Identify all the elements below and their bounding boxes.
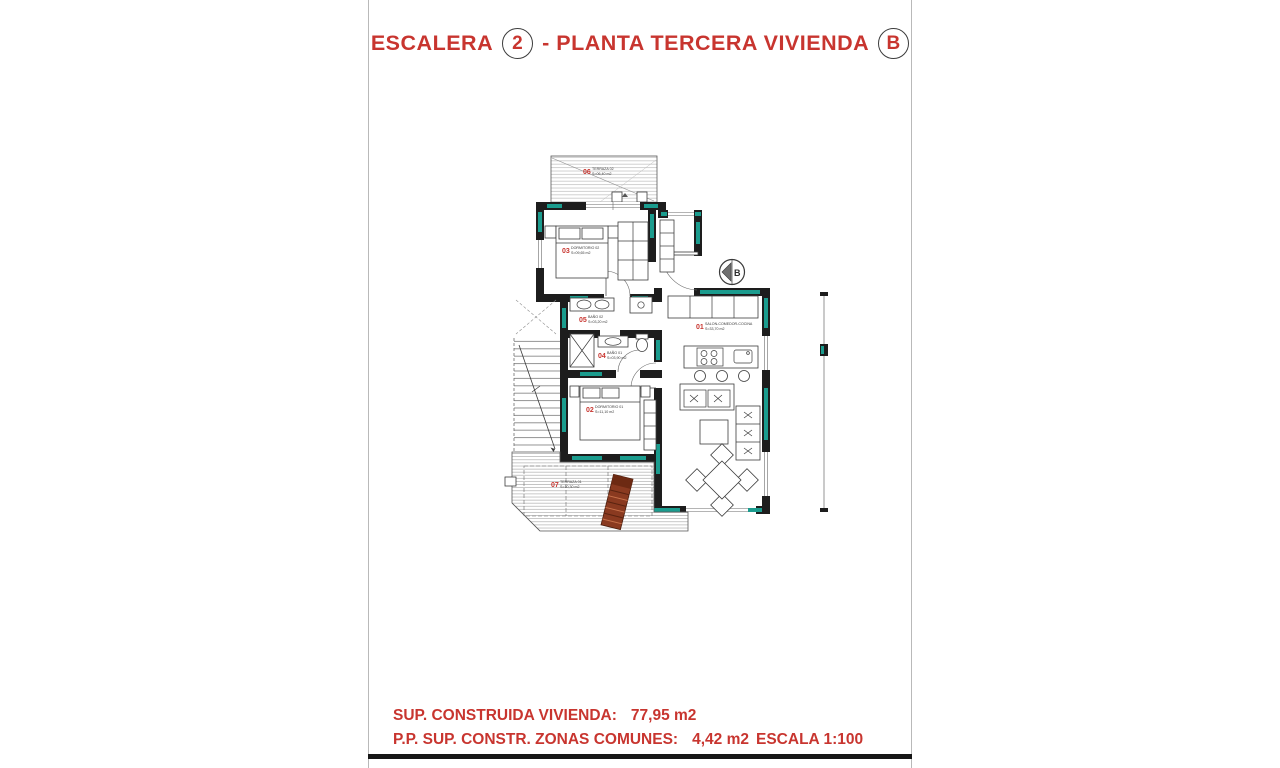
svg-text:B: B xyxy=(734,268,741,278)
svg-text:S=09,65 m2: S=09,65 m2 xyxy=(571,251,590,255)
svg-text:06: 06 xyxy=(583,169,591,176)
bano-02-label: 05 BAÑO 02 S=03,20 m2 xyxy=(579,314,607,324)
bano-02: 05 BAÑO 02 S=03,20 m2 xyxy=(570,297,652,324)
svg-text:04: 04 xyxy=(598,353,606,360)
entrance-marker: B xyxy=(720,260,745,285)
stair-number: 2 xyxy=(512,33,523,55)
svg-text:TERRAZA 02: TERRAZA 02 xyxy=(592,167,614,171)
page-border-bottom xyxy=(368,754,912,759)
page-border-left xyxy=(368,0,369,768)
svg-text:05: 05 xyxy=(579,317,587,324)
page-border-right xyxy=(911,0,912,768)
terraza-02: 06 TERRAZA 02 S=06,40 m2 xyxy=(551,156,657,203)
svg-text:SALON-COMEDOR-COCINA: SALON-COMEDOR-COCINA xyxy=(705,322,753,326)
page-title: ESCALERA 2 - PLANTA TERCERA VIVIENDA B xyxy=(368,28,912,59)
svg-text:BAÑO 02: BAÑO 02 xyxy=(588,314,603,319)
footer-common-zones: P.P. SUP. CONSTR. ZONAS COMUNES:4,42 m2 xyxy=(393,731,749,749)
svg-text:TERRAZA 01: TERRAZA 01 xyxy=(560,480,582,484)
svg-text:07: 07 xyxy=(551,482,559,489)
svg-text:03: 03 xyxy=(562,248,570,255)
built-area-value: 77,95 m2 xyxy=(631,707,697,724)
salon-label: 01 SALON-COMEDOR-COCINA S=33,70 m2 xyxy=(696,322,753,331)
svg-text:BAÑO 01: BAÑO 01 xyxy=(607,350,622,355)
svg-text:S=10,30 m2: S=10,30 m2 xyxy=(560,485,579,489)
svg-text:S=11,10 m2: S=11,10 m2 xyxy=(595,410,614,414)
footer-built-area: SUP. CONSTRUIDA VIVIENDA:77,95 m2 xyxy=(393,707,696,725)
common-zones-label: P.P. SUP. CONSTR. ZONAS COMUNES: xyxy=(393,731,678,748)
unit-letter-circle: B xyxy=(878,28,909,59)
svg-text:S=03,20 m2: S=03,20 m2 xyxy=(588,320,607,324)
svg-text:S=33,70 m2: S=33,70 m2 xyxy=(705,327,724,331)
svg-text:DORMITORIO 01: DORMITORIO 01 xyxy=(595,405,623,409)
footer-scale: ESCALA 1:100 xyxy=(756,731,863,749)
unit-letter: B xyxy=(887,33,901,55)
svg-text:S=06,40 m2: S=06,40 m2 xyxy=(592,172,611,176)
title-prefix: ESCALERA xyxy=(371,31,493,56)
svg-text:S=03,90 m2: S=03,90 m2 xyxy=(607,356,626,360)
common-zones-value: 4,42 m2 xyxy=(692,731,749,748)
salon-comedor-cocina: 01 SALON-COMEDOR-COCINA S=33,70 m2 xyxy=(668,296,760,516)
balcony-edge xyxy=(820,292,828,512)
dormitorio-02: 03 DORMITORIO 02 S=09,65 m2 xyxy=(545,222,648,280)
drawing-sheet: { "title": { "prefix": "ESCALERA", "stai… xyxy=(0,0,1280,768)
svg-text:02: 02 xyxy=(586,407,594,414)
terraza-01-label: 07 TERRAZA 01 S=10,30 m2 xyxy=(551,480,582,489)
stair-number-circle: 2 xyxy=(502,28,533,59)
stairs xyxy=(512,300,560,463)
floor-plan-svg: 06 TERRAZA 02 S=06,40 m2 xyxy=(455,140,855,545)
bano-01-label: 04 BAÑO 01 S=03,90 m2 xyxy=(598,350,626,360)
title-middle: - PLANTA TERCERA VIVIENDA xyxy=(542,31,869,56)
dormitorio-01: 02 DORMITORIO 01 S=11,10 m2 xyxy=(570,386,656,450)
hall-closet xyxy=(660,220,674,272)
svg-text:01: 01 xyxy=(696,324,704,331)
terraza-02-label: 06 TERRAZA 02 S=06,40 m2 xyxy=(583,167,614,176)
built-area-label: SUP. CONSTRUIDA VIVIENDA: xyxy=(393,707,617,724)
svg-text:DORMITORIO 02: DORMITORIO 02 xyxy=(571,246,599,250)
